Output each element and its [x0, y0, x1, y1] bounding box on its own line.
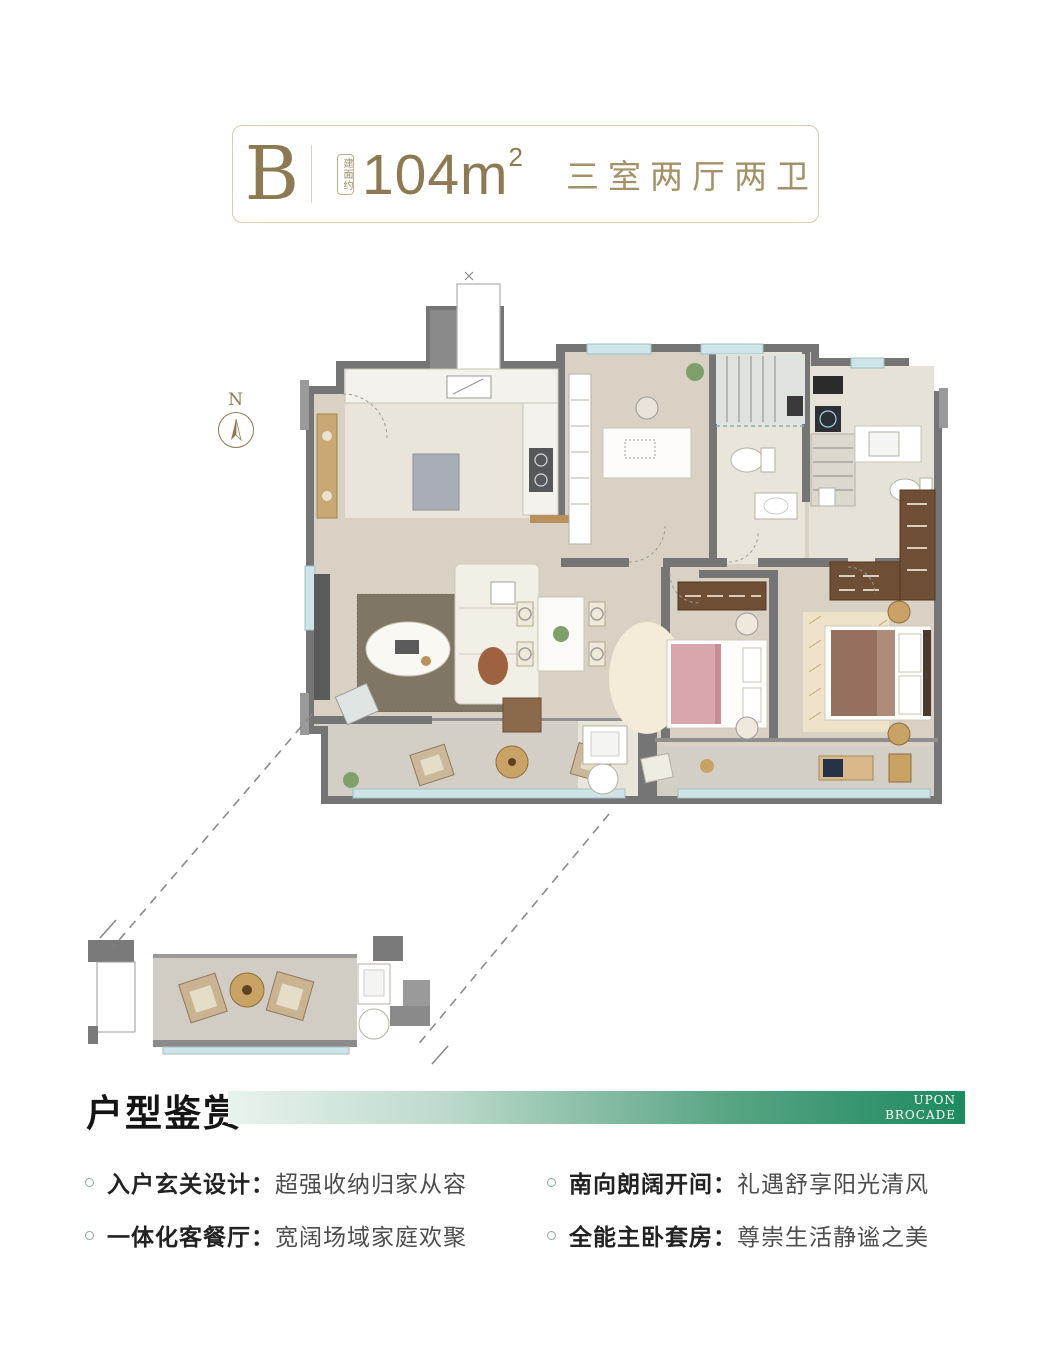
bullet-icon — [547, 1231, 556, 1240]
brand-line1: UPON — [885, 1093, 956, 1107]
bullet-icon — [85, 1178, 94, 1187]
bath-sink — [755, 493, 797, 519]
balcony-detail — [85, 928, 430, 1070]
bullet-icon — [547, 1178, 556, 1187]
feature-item: 全能主卧套房： 尊崇生活静谧之美 — [547, 1218, 967, 1252]
balcony-stool — [889, 754, 911, 782]
north-arrow-icon — [218, 412, 254, 448]
feature-label: 入户玄关设计： — [107, 1165, 275, 1199]
washer — [815, 406, 841, 432]
study-desk — [603, 428, 691, 478]
plate-divider — [311, 145, 312, 203]
nightstand — [888, 723, 910, 745]
kitchen-sink — [447, 376, 491, 398]
area-superscript: 2 — [509, 142, 524, 172]
plant-3 — [343, 772, 359, 788]
bullet-icon — [85, 1231, 94, 1240]
feature-column-right: 南向朗阔开间： 礼遇舒享阳光清风 全能主卧套房： 尊崇生活静谧之美 — [547, 1165, 967, 1252]
nightstand — [736, 613, 758, 635]
feature-desc: 礼遇舒享阳光清风 — [737, 1165, 929, 1199]
toilet — [731, 448, 763, 472]
feature-item: 南向朗阔开间： 礼遇舒享阳光清风 — [547, 1165, 967, 1199]
area-value: 104m2 — [362, 144, 524, 204]
feature-label: 全能主卧套房： — [569, 1218, 737, 1252]
feature-desc: 超强收纳归家从容 — [275, 1165, 467, 1199]
feature-item: 入户玄关设计： 超强收纳归家从容 — [85, 1165, 547, 1199]
area-badge: 建面约 — [337, 154, 354, 195]
sofa-pillow — [491, 582, 515, 604]
feature-list: 入户玄关设计： 超强收纳归家从容 一体化客餐厅： 宽阔场域家庭欢聚 南向朗阔开间… — [85, 1165, 967, 1252]
entry-console — [317, 414, 337, 518]
gradient-bar: UPON BROCADE — [228, 1091, 965, 1124]
floor-plan — [295, 268, 955, 823]
feature-label: 南向朗阔开间： — [569, 1165, 737, 1199]
compass-north-label: N — [210, 390, 262, 410]
feature-desc: 尊崇生活静谧之美 — [737, 1218, 929, 1252]
brand-line2: BROCADE — [885, 1108, 956, 1122]
study-chair — [636, 397, 658, 419]
page: B 建面约 104m2 三室两厅两卫 N — [0, 0, 1043, 1359]
section-title: 户型鉴赏 — [86, 1083, 242, 1137]
area-number: 104m — [362, 143, 509, 207]
brand-logo: UPON BROCADE — [885, 1093, 965, 1122]
unit-header-plate: B 建面约 104m2 三室两厅两卫 — [232, 125, 819, 223]
detail-tub — [359, 1009, 389, 1039]
feature-desc: 宽阔场域家庭欢聚 — [275, 1218, 467, 1252]
feature-item: 一体化客餐厅： 宽阔场域家庭欢聚 — [85, 1218, 547, 1252]
rooms-text: 三室两厅两卫 — [566, 150, 818, 198]
laundry-tub — [588, 764, 618, 794]
nightstand — [736, 717, 758, 739]
nightstand — [888, 601, 910, 623]
plant — [686, 363, 704, 381]
compass: N — [210, 390, 262, 448]
feature-label: 一体化客餐厅： — [107, 1218, 275, 1252]
stove — [529, 448, 553, 492]
cushions — [641, 753, 673, 782]
vanity-sink — [869, 432, 899, 456]
feature-column-left: 入户玄关设计： 超强收纳归家从容 一体化客餐厅： 宽阔场域家庭欢聚 — [85, 1165, 547, 1252]
shower-head — [787, 396, 803, 416]
unit-letter: B — [233, 137, 311, 211]
door-mat — [813, 376, 843, 394]
tv-cabinet — [314, 574, 330, 700]
fridge — [413, 454, 459, 510]
pouf — [478, 647, 508, 685]
side-table — [503, 698, 541, 732]
